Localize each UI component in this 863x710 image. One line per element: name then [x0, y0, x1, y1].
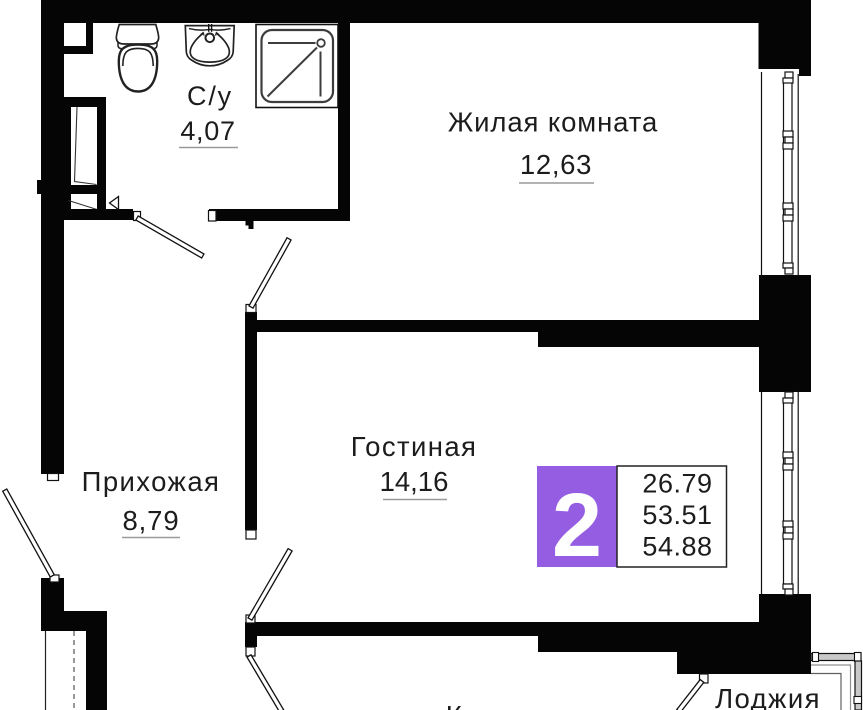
svg-text:2: 2	[552, 476, 602, 576]
svg-text:14,16: 14,16	[380, 466, 449, 497]
svg-text:4,07: 4,07	[180, 116, 235, 146]
svg-text:8,79: 8,79	[122, 505, 179, 536]
svg-text:Кухня: Кухня	[446, 700, 527, 710]
svg-text:12,63: 12,63	[520, 149, 592, 180]
svg-text:54.88: 54.88	[642, 532, 712, 562]
svg-text:Прихожая: Прихожая	[82, 466, 221, 497]
svg-text:26.79: 26.79	[642, 469, 712, 499]
svg-text:Лоджия: Лоджия	[715, 683, 821, 710]
svg-text:53.51: 53.51	[642, 500, 712, 530]
svg-text:С/у: С/у	[187, 81, 233, 111]
svg-text:Гостиная: Гостиная	[351, 431, 478, 462]
svg-text:Жилая комната: Жилая комната	[448, 107, 658, 138]
